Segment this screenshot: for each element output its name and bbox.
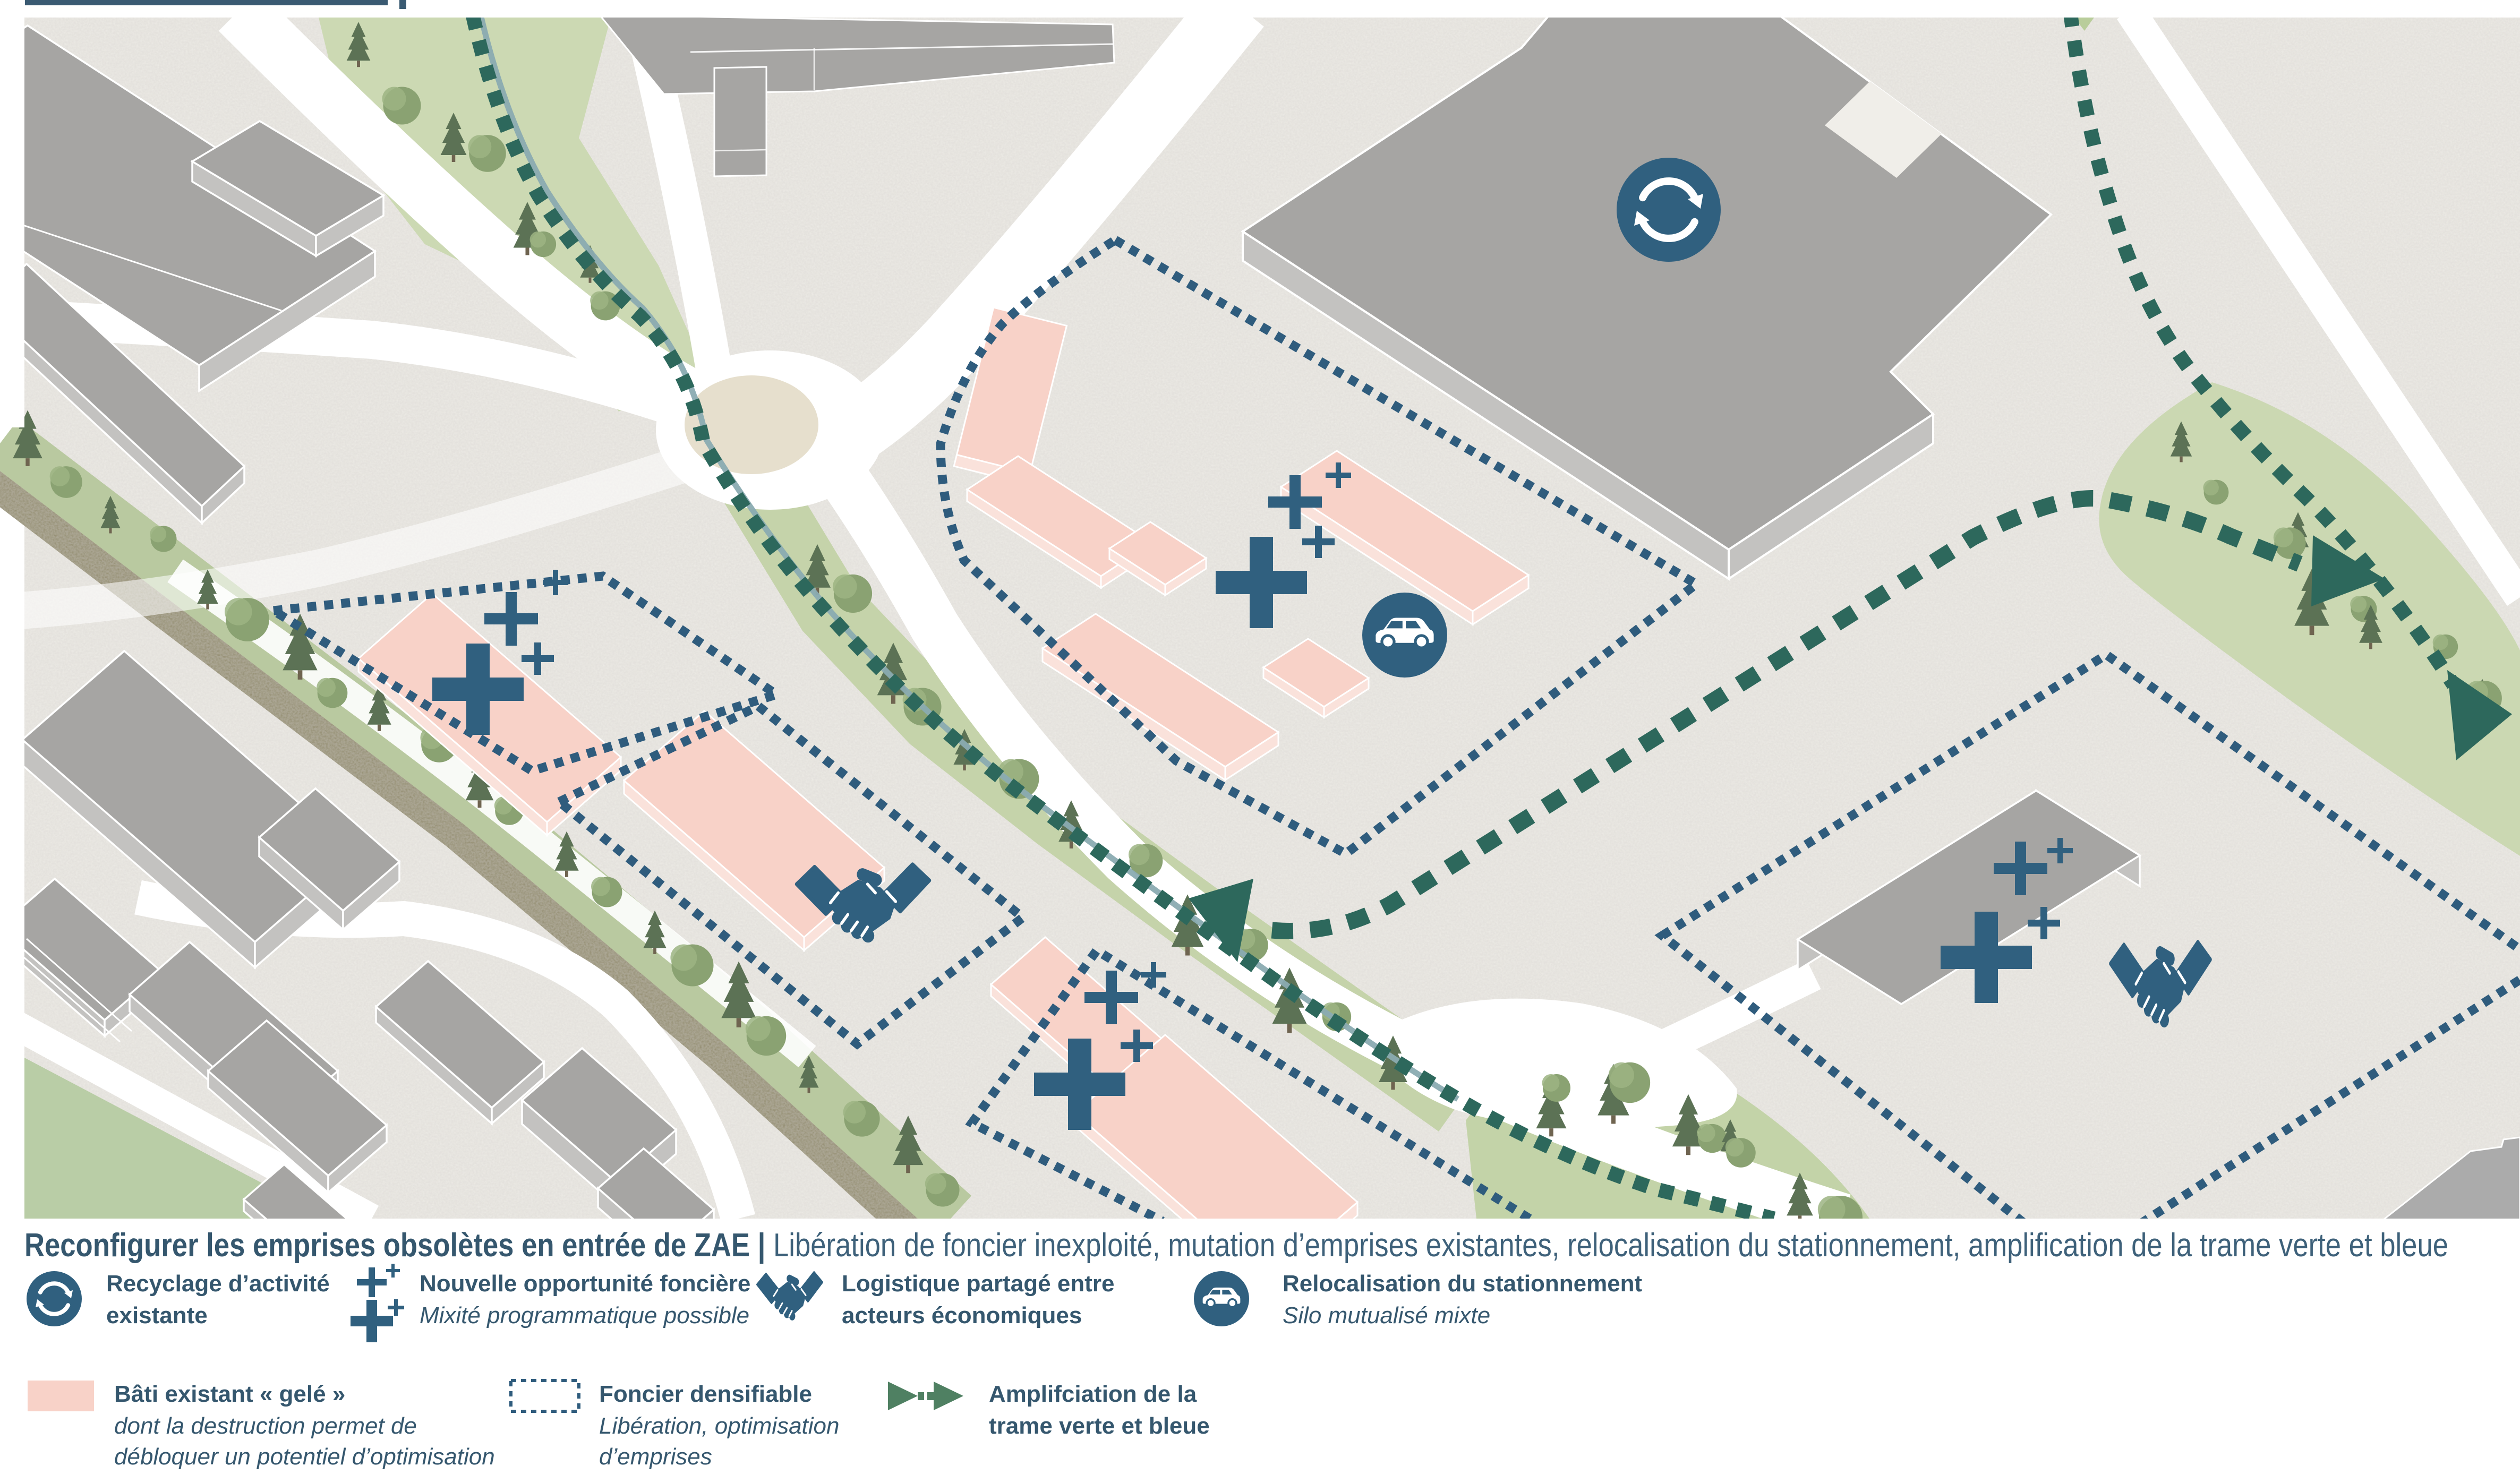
svg-text:Amplifciation de la: Amplifciation de la	[989, 1381, 1197, 1407]
svg-text:Bâti existant « gelé »: Bâti existant « gelé »	[114, 1381, 345, 1407]
svg-text:d’emprises: d’emprises	[599, 1444, 712, 1470]
svg-text:Logistique partagé entre: Logistique partagé entre	[842, 1271, 1114, 1297]
svg-text:Relocalisation du stationnemen: Relocalisation du stationnement	[1283, 1271, 1643, 1297]
svg-text:débloquer un potentiel d’optim: débloquer un potentiel d’optimisation	[114, 1444, 495, 1470]
svg-text:Libération, optimisation: Libération, optimisation	[599, 1413, 839, 1439]
svg-text:dont la destruction permet de: dont la destruction permet de	[114, 1413, 417, 1439]
svg-text:Nouvelle opportunité foncière: Nouvelle opportunité foncière	[420, 1271, 750, 1297]
svg-text:Mixité programmatique possible: Mixité programmatique possible	[420, 1302, 749, 1328]
svg-text:acteurs économiques: acteurs économiques	[842, 1302, 1082, 1328]
svg-text:Recyclage d’activité: Recyclage d’activité	[106, 1271, 330, 1297]
svg-text:Silo mutualisé mixte: Silo mutualisé mixte	[1283, 1302, 1490, 1328]
svg-text:Foncier densifiable: Foncier densifiable	[599, 1381, 812, 1407]
svg-text:trame verte et bleue: trame verte et bleue	[989, 1413, 1210, 1439]
svg-text:Reconfigurer les emprises obso: Reconfigurer les emprises obsolètes en e…	[24, 1227, 2448, 1264]
svg-text:existante: existante	[106, 1302, 208, 1328]
